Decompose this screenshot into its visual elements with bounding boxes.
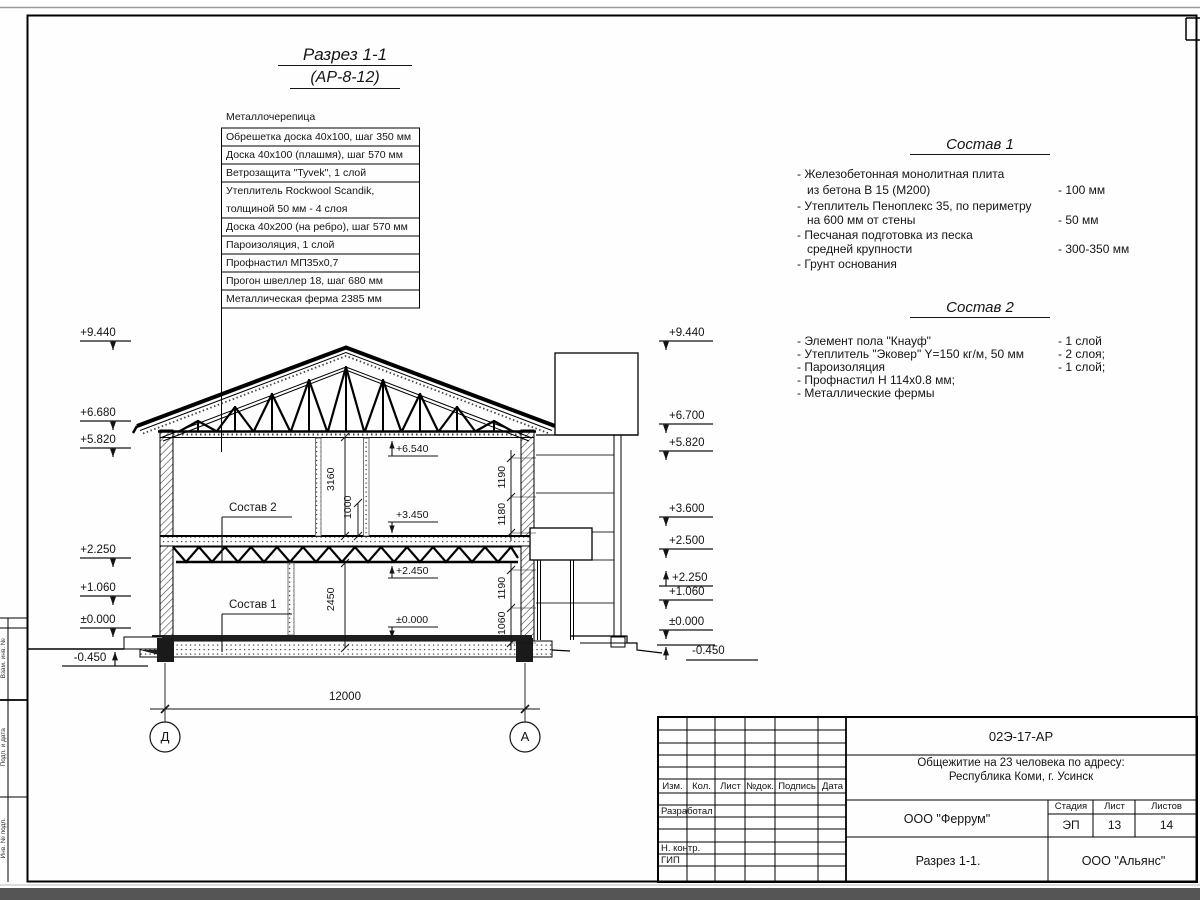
sostav1-line: - Грунт основания — [797, 258, 897, 270]
sostav2-line: - Металлические фермы — [797, 387, 934, 399]
drawing-title-line1: Разрез 1-1 — [278, 46, 412, 66]
interior-elevation: ±0.000 — [396, 615, 428, 626]
sheet-title: Разрез 1-1. — [848, 855, 1048, 868]
project-name-line1: Общежитие на 23 человека по адресу: — [851, 758, 1191, 770]
elevation-mark: -0.450 — [68, 653, 112, 665]
tb-row-razrabotal: Разработал — [661, 807, 713, 817]
elevation-mark: -0.450 — [692, 646, 725, 658]
elevation-mark: +1.060 — [669, 587, 705, 599]
tb-col-podpis: Подпись — [776, 782, 818, 792]
elevation-mark: +9.440 — [669, 328, 705, 340]
roof-layer-row: Ветрозащита "Tyvek", 1 слой — [226, 168, 366, 179]
sostav2-heading: Состав 2 — [910, 300, 1050, 318]
dim-right-upper: 1190 — [497, 457, 508, 497]
sostav1-line: - Утеплитель Пеноплекс 35, по периметру — [797, 200, 1032, 212]
margin-label: Подп. и дата — [1, 712, 8, 782]
sostav2-line: - Профнастил Н 114х0.8 мм; — [797, 374, 955, 386]
drawing-sheet: Разрез 1-1 (АР-8-12) Металлочерепица Обр… — [0, 0, 1200, 900]
elevation-mark: +2.250 — [77, 545, 119, 557]
elevation-mark: ±0.000 — [77, 615, 119, 627]
margin-label: Взам. инв. № — [1, 623, 8, 693]
sheets-label: Листов — [1136, 802, 1197, 812]
sostav2-ref-label: Состав 2 — [229, 503, 277, 515]
tb-col-data: Дата — [819, 782, 846, 792]
margin-label: Инв. № подл. — [1, 803, 8, 873]
elevation-mark: +6.680 — [77, 408, 119, 420]
sostav1-ref-label: Состав 1 — [229, 600, 277, 612]
sostav1-heading: Состав 1 — [910, 137, 1050, 155]
company-name: ООО "Альянс" — [1050, 855, 1197, 868]
interior-elevation: +3.450 — [396, 510, 428, 521]
dim-floor2-sub: 1000 — [343, 487, 354, 527]
roof-layer-row: Металлическая ферма 2385 мм — [226, 294, 382, 305]
stage-label: Стадия — [1049, 802, 1093, 812]
doc-number: 02Э-17-АР — [871, 730, 1171, 743]
roof-layer-row: Доска 40х100 (плашмя), шаг 570 мм — [226, 150, 403, 161]
sostav2-value: - 1 слой — [1058, 335, 1102, 347]
tb-col-ndok: №док. — [745, 782, 775, 792]
elevation-mark: +2.500 — [669, 536, 705, 548]
sheet-label: Лист — [1094, 802, 1135, 812]
sostav1-line: - Песчаная подготовка из песка — [797, 229, 973, 241]
tb-row-nkontr: Н. контр. — [661, 844, 700, 854]
sostav2-value: - 2 слоя; — [1058, 348, 1105, 360]
roof-layer-row: Пароизоляция, 1 слой — [226, 240, 334, 251]
elevation-mark: +1.060 — [77, 583, 119, 595]
dim-floor2-height: 3160 — [326, 459, 337, 499]
dim-right-upper: 1180 — [497, 494, 508, 534]
tb-row-gip: ГИП — [661, 856, 680, 866]
axis-label-right: А — [510, 730, 540, 743]
sostav1-line: из бетона В 15 (М200) — [807, 184, 930, 196]
elevation-mark: +6.700 — [669, 411, 705, 423]
elevation-mark: ±0.000 — [669, 617, 704, 629]
dim-right-lower: 1190 — [497, 568, 508, 608]
interior-elevation: +6.540 — [396, 444, 428, 455]
dim-floor1-height: 2450 — [326, 579, 337, 619]
sostav1-value: - 50 мм — [1058, 214, 1099, 226]
sostav2-line: - Утеплитель "Эковер" Y=150 кг/м, 50 мм — [797, 348, 1024, 360]
project-name-line2: Республика Коми, г. Усинск — [851, 772, 1191, 784]
roof-layer-row: Профнастил МП35х0,7 — [226, 258, 338, 269]
roof-layer-top-label: Металлочерепица — [226, 112, 315, 123]
stage-value: ЭП — [1049, 819, 1093, 831]
roof-layer-row: Прогон швеллер 18, шаг 680 мм — [226, 276, 383, 287]
sheet-value: 13 — [1094, 819, 1135, 831]
sostav2-line: - Пароизоляция — [797, 361, 885, 373]
sostav1-value: - 300-350 мм — [1058, 243, 1129, 255]
elevation-mark: +2.250 — [672, 573, 708, 585]
tb-col-kol: Кол. — [688, 782, 715, 792]
roof-layer-row: Утеплитель Rockwool Scandik, — [226, 186, 374, 197]
sostav2-line: - Элемент пола "Кнауф" — [797, 335, 931, 347]
elevation-mark: +5.820 — [669, 438, 705, 450]
elevation-mark: +9.440 — [77, 328, 119, 340]
sostav1-line: средней крупности — [807, 243, 912, 255]
dim-overall: 12000 — [305, 692, 385, 704]
tb-col-izm: Изм. — [658, 782, 687, 792]
interior-elevation: +2.450 — [396, 566, 428, 577]
sostav1-value: - 100 мм — [1058, 184, 1105, 196]
elevation-mark: +5.820 — [77, 435, 119, 447]
dim-right-lower: 1060 — [497, 603, 508, 643]
axis-label-left: Д — [150, 730, 180, 743]
roof-layer-row: Обрешетка доска 40х100, шаг 350 мм — [226, 132, 411, 143]
designer-company: ООО "Феррум" — [847, 813, 1047, 826]
sheets-value: 14 — [1136, 819, 1197, 831]
sostav1-line: на 600 мм от стены — [807, 214, 915, 226]
roof-layer-row: Доска 40х200 (на ребро), шаг 570 мм — [226, 222, 408, 233]
sostav1-line: - Железобетонная монолитная плита — [797, 168, 1004, 180]
elevation-mark: +3.600 — [669, 504, 705, 516]
drawing-title-line2: (АР-8-12) — [290, 70, 400, 89]
roof-layer-row: толщиной 50 мм - 4 слоя — [226, 204, 348, 215]
sostav2-value: - 1 слой; — [1058, 361, 1105, 373]
tb-col-list: Лист — [716, 782, 745, 792]
